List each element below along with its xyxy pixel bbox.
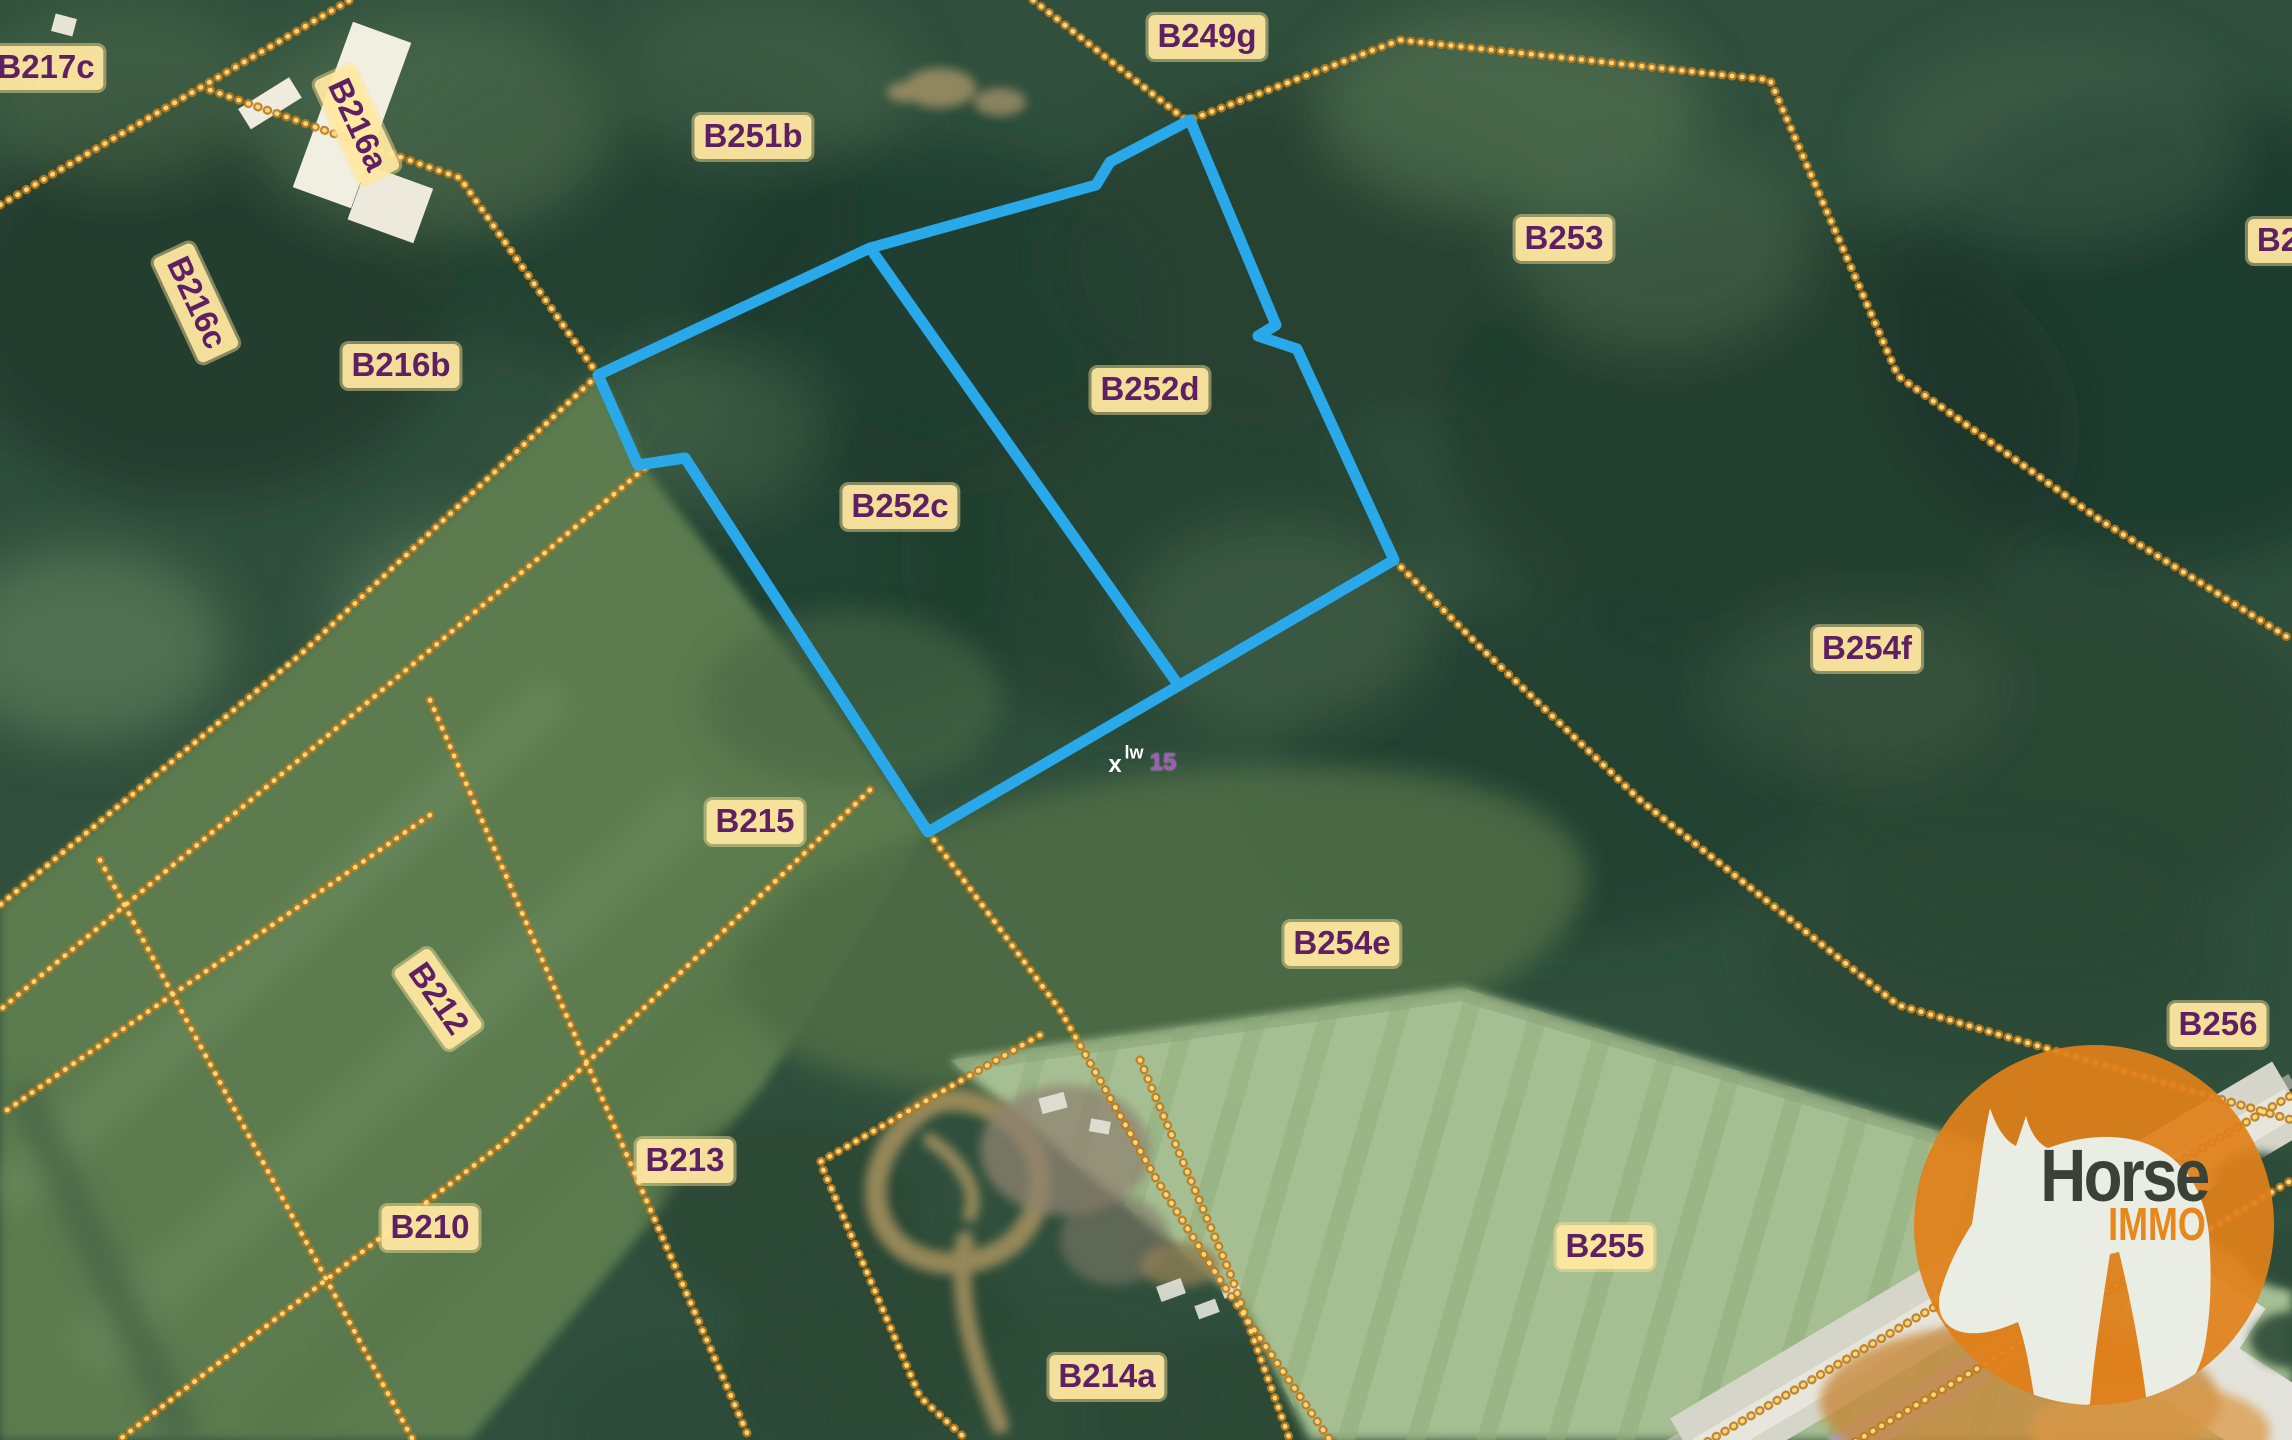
parcel-label-B252c: B252c [842, 485, 957, 529]
survey-mark-15: 15 [1150, 749, 1177, 777]
map-canvas[interactable]: Horse IMMO [0, 0, 2292, 1440]
survey-mark-x: x [1108, 751, 1121, 779]
parcel-label-B2-clipped: B2 [2248, 219, 2292, 263]
parcel-label-B217c: B217c [0, 46, 104, 90]
parcel-label-B214a: B214a [1049, 1355, 1164, 1399]
parcel-label-B213: B213 [637, 1139, 734, 1183]
parcel-label-B252d: B252d [1091, 368, 1208, 412]
aerial-cadastral-map[interactable]: Horse IMMO B217c B216a B216c B216b B251b… [0, 0, 2292, 1440]
parcel-label-B215: B215 [707, 800, 804, 844]
logo-sub-brand-text: IMMO [2108, 1199, 2206, 1250]
survey-mark-lw: lw [1124, 743, 1143, 764]
parcel-label-B210: B210 [382, 1206, 479, 1250]
parcel-label-B256: B256 [2170, 1003, 2267, 1047]
parcel-label-B216b: B216b [342, 344, 459, 388]
parcel-label-B255: B255 [1557, 1225, 1654, 1269]
parcel-label-B254e: B254e [1284, 922, 1399, 966]
parcel-label-B254f: B254f [1813, 627, 1921, 671]
parcel-label-B251b: B251b [694, 115, 811, 159]
parcel-label-B249g: B249g [1148, 15, 1265, 59]
parcel-label-B253: B253 [1516, 217, 1613, 261]
